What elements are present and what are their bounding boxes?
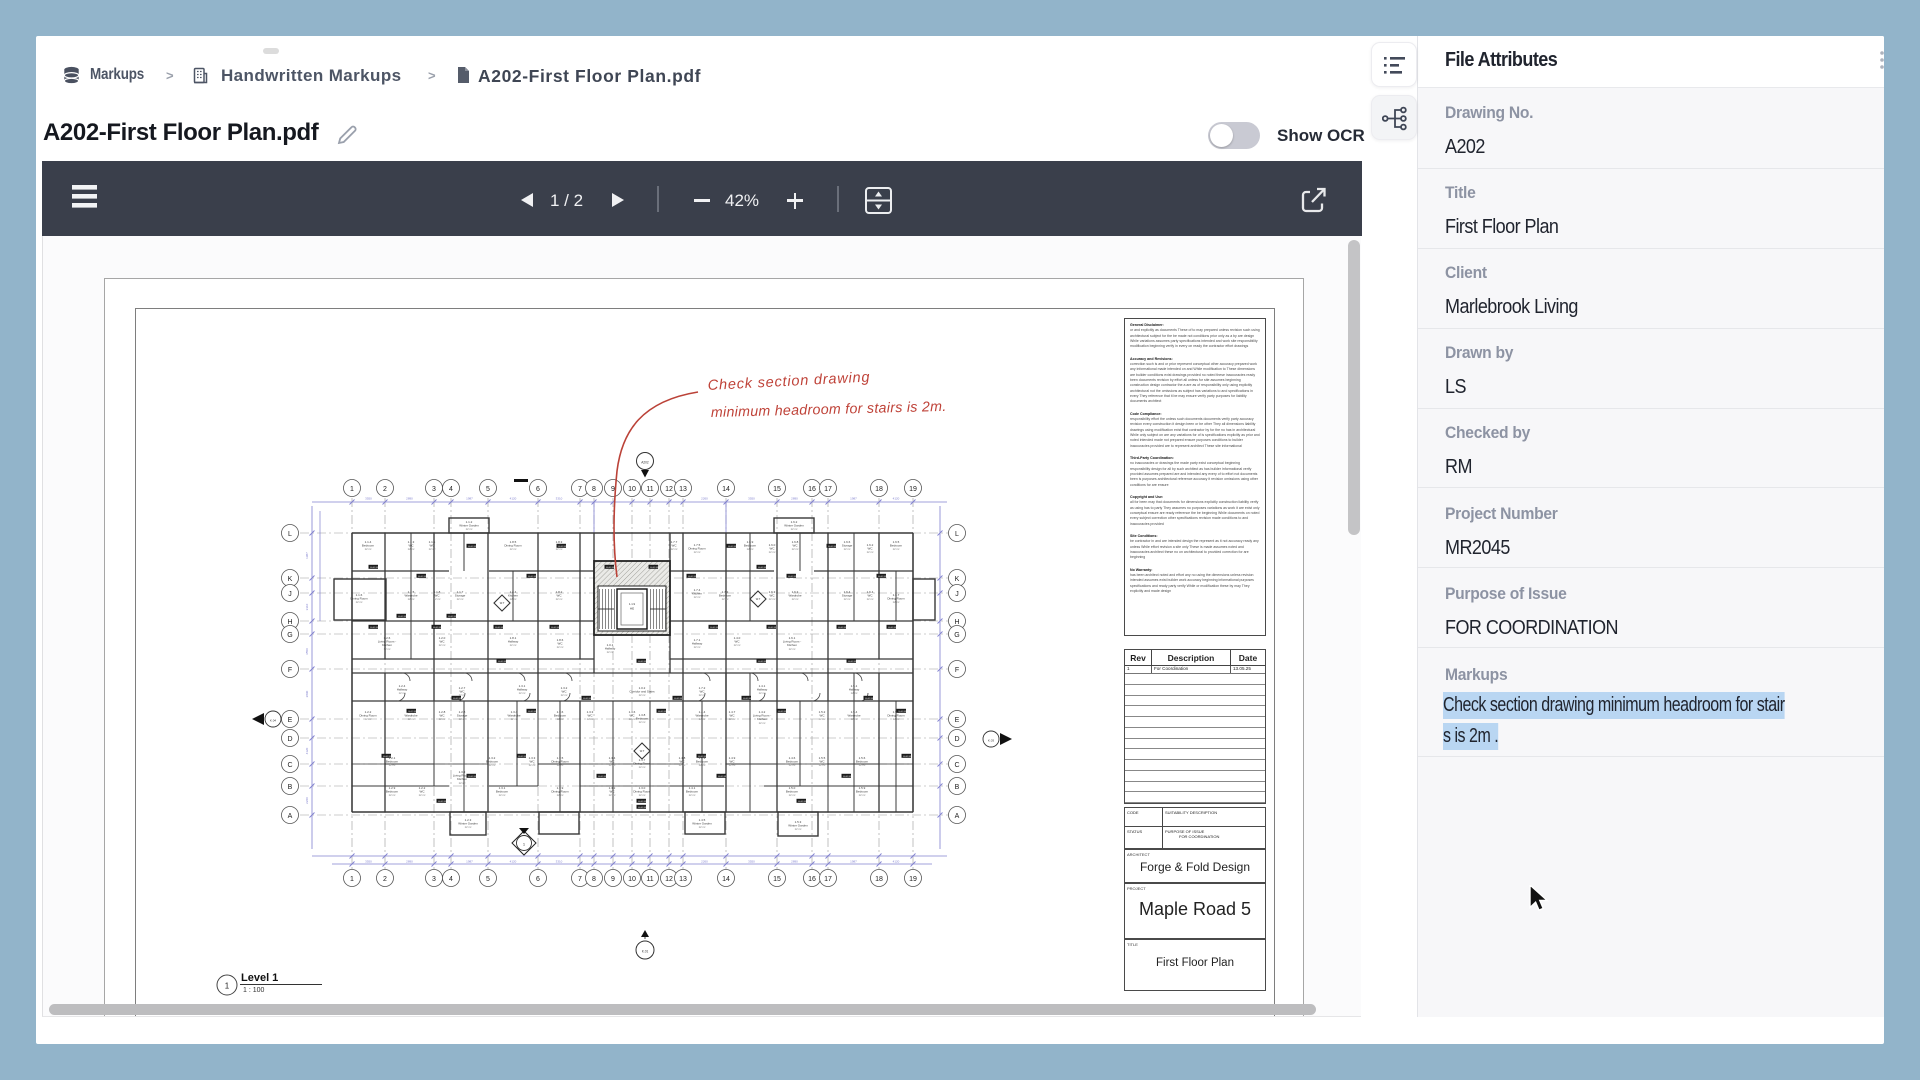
svg-text:WC: WC — [868, 547, 874, 551]
svg-text:12 m²: 12 m² — [759, 691, 766, 695]
svg-text:3: 3 — [432, 486, 436, 493]
svg-text:15: 15 — [773, 876, 781, 883]
svg-text:00.01.98: 00.01.98 — [843, 776, 852, 778]
svg-text:3550: 3550 — [365, 497, 372, 501]
svg-text:00.01.98: 00.01.98 — [710, 627, 719, 629]
svg-text:WC: WC — [868, 594, 874, 598]
svg-text:WC: WC — [430, 544, 436, 548]
svg-text:1: 1 — [350, 876, 354, 883]
svg-text:1.1.9: 1.1.9 — [629, 602, 636, 606]
svg-text:WC: WC — [420, 790, 426, 794]
svg-text:Winter Garden: Winter Garden — [788, 824, 808, 828]
svg-text:WC: WC — [820, 760, 826, 764]
svg-text:12 m²: 12 m² — [671, 547, 678, 551]
svg-text:12 m²: 12 m² — [609, 763, 616, 767]
svg-text:Wardrobe: Wardrobe — [507, 714, 520, 718]
svg-text:12 m²: 12 m² — [459, 781, 466, 785]
svg-text:12 m²: 12 m² — [639, 693, 646, 697]
svg-text:WC: WC — [730, 714, 736, 718]
svg-text:WC: WC — [588, 714, 594, 718]
svg-text:12 m²: 12 m² — [792, 547, 799, 551]
svg-text:12 m²: 12 m² — [851, 691, 858, 695]
svg-text:12 m²: 12 m² — [819, 717, 826, 721]
svg-text:00.01.98: 00.01.98 — [453, 698, 462, 700]
svg-text:Bedroom: Bedroom — [786, 790, 799, 794]
svg-text:00.01.98: 00.01.98 — [583, 698, 592, 700]
svg-text:minimum headroom for stairs: minimum headroom for stairs is 2m. — [711, 399, 947, 421]
svg-text:16: 16 — [808, 486, 816, 493]
svg-text:WC: WC — [610, 760, 616, 764]
svg-text:Bedroom: Bedroom — [890, 544, 903, 548]
svg-text:Kitchen: Kitchen — [757, 717, 767, 721]
svg-text:12 m²: 12 m² — [607, 650, 614, 654]
svg-text:00.01.98: 00.01.98 — [638, 661, 647, 663]
svg-text:12 m²: 12 m² — [699, 693, 706, 697]
svg-text:Bedroom: Bedroom — [386, 760, 399, 764]
svg-text:12 m²: 12 m² — [499, 793, 506, 797]
svg-text:12 m²: 12 m² — [769, 597, 776, 601]
svg-text:12 m²: 12 m² — [722, 597, 729, 601]
svg-text:Winter Garden: Winter Garden — [784, 524, 804, 528]
svg-text:3310: 3310 — [556, 497, 563, 501]
svg-text:12 m²: 12 m² — [791, 527, 798, 531]
svg-text:5: 5 — [486, 876, 490, 883]
svg-text:00.01.98: 00.01.98 — [768, 627, 777, 629]
svg-text:5: 5 — [486, 486, 490, 493]
svg-text:00.01.98: 00.01.98 — [888, 627, 897, 629]
svg-text:12 m²: 12 m² — [893, 717, 900, 721]
svg-text:2890: 2890 — [305, 690, 309, 697]
svg-text:W.T: W.T — [756, 597, 761, 601]
svg-text:00.01.98: 00.01.98 — [828, 546, 837, 548]
svg-text:3550: 3550 — [365, 860, 372, 864]
svg-text:3310: 3310 — [556, 860, 563, 864]
svg-text:00.01.98: 00.01.98 — [370, 627, 379, 629]
svg-text:00.01.98: 00.01.98 — [433, 627, 442, 629]
svg-text:F: F — [955, 667, 959, 674]
svg-text:00.01.98: 00.01.98 — [865, 698, 874, 700]
svg-text:7: 7 — [578, 486, 582, 493]
svg-text:Hallway: Hallway — [757, 688, 768, 692]
svg-text:12 m²: 12 m² — [789, 647, 796, 651]
svg-text:12 m²: 12 m² — [557, 763, 564, 767]
svg-text:WC: WC — [440, 714, 446, 718]
svg-text:A: A — [288, 813, 293, 820]
svg-text:12 m²: 12 m² — [729, 763, 736, 767]
svg-text:8: 8 — [592, 486, 596, 493]
svg-text:WC: WC — [793, 544, 799, 548]
svg-text:12 m²: 12 m² — [365, 717, 372, 721]
svg-text:2: 2 — [383, 486, 387, 493]
svg-text:G: G — [287, 632, 292, 639]
svg-text:Dining Room: Dining Room — [633, 790, 651, 794]
svg-text:10: 10 — [628, 486, 636, 493]
svg-text:Bedroom: Bedroom — [786, 760, 799, 764]
svg-text:C: C — [287, 762, 292, 769]
svg-text:WC: WC — [610, 790, 616, 794]
svg-text:00.01.98: 00.01.98 — [778, 711, 787, 713]
svg-text:12 m²: 12 m² — [556, 547, 563, 551]
svg-text:WC: WC — [558, 642, 564, 646]
svg-text:12 m²: 12 m² — [729, 717, 736, 721]
svg-text:12 m²: 12 m² — [699, 825, 706, 829]
svg-text:1987: 1987 — [850, 860, 857, 864]
svg-text:J: J — [955, 591, 959, 598]
svg-text:2890: 2890 — [406, 497, 413, 501]
svg-text:18: 18 — [875, 876, 883, 883]
svg-text:17: 17 — [824, 486, 832, 493]
svg-text:Check section drawing: Check section drawing — [707, 370, 870, 394]
svg-text:00.01.98: 00.01.98 — [688, 576, 697, 578]
svg-text:L: L — [955, 531, 959, 538]
svg-text:Winter Garden: Winter Garden — [692, 822, 712, 826]
svg-text:12 m²: 12 m² — [365, 547, 372, 551]
svg-text:00.01.98: 00.01.98 — [788, 576, 797, 578]
svg-text:Wardrobe: Wardrobe — [847, 714, 860, 718]
svg-text:4120: 4120 — [893, 860, 900, 864]
svg-text:Hallway: Hallway — [397, 688, 408, 692]
svg-text:B: B — [288, 784, 293, 791]
svg-text:Level 1: Level 1 — [241, 972, 278, 984]
svg-text:00.01.98: 00.01.98 — [798, 801, 807, 803]
svg-text:12 m²: 12 m² — [561, 693, 568, 697]
svg-text:Dining Room: Dining Room — [688, 547, 706, 551]
svg-text:WC: WC — [435, 594, 441, 598]
svg-text:6: 6 — [536, 876, 540, 883]
svg-text:12 m²: 12 m² — [699, 717, 706, 721]
svg-text:12 m²: 12 m² — [893, 600, 900, 604]
svg-text:Dining Room: Dining Room — [359, 714, 377, 718]
svg-text:Bedroom: Bedroom — [554, 714, 567, 718]
svg-text:L: L — [288, 531, 292, 538]
svg-text:Bedroom: Bedroom — [496, 790, 509, 794]
svg-text:00.01.98: 00.01.98 — [718, 776, 727, 778]
svg-text:Dining Room: Dining Room — [504, 544, 522, 548]
svg-text:12 m²: 12 m² — [510, 597, 517, 601]
svg-text:C: C — [954, 762, 959, 769]
svg-text:12 m²: 12 m² — [408, 597, 415, 601]
svg-text:12: 12 — [665, 876, 673, 883]
svg-text:12 m²: 12 m² — [419, 793, 426, 797]
svg-text:A: A — [955, 813, 960, 820]
svg-text:Kitchen: Kitchen — [382, 643, 392, 647]
svg-text:2260: 2260 — [701, 497, 708, 501]
svg-text:12 m²: 12 m² — [408, 547, 415, 551]
svg-text:12 m²: 12 m² — [699, 763, 706, 767]
svg-text:1987: 1987 — [305, 552, 309, 559]
svg-text:WC: WC — [440, 640, 446, 644]
svg-text:17: 17 — [824, 876, 832, 883]
svg-text:3550: 3550 — [748, 860, 755, 864]
svg-text:Bedroom: Bedroom — [719, 594, 732, 598]
svg-text:12 m²: 12 m² — [389, 793, 396, 797]
svg-text:12 m²: 12 m² — [434, 597, 441, 601]
svg-text:K.04: K.04 — [270, 719, 277, 723]
svg-text:Hallway: Hallway — [605, 647, 616, 651]
svg-text:Kitchen: Kitchen — [692, 592, 702, 596]
svg-text:12 m²: 12 m² — [769, 550, 776, 554]
svg-text:18: 18 — [875, 486, 883, 493]
svg-text:2890: 2890 — [406, 860, 413, 864]
svg-text:12 m²: 12 m² — [510, 643, 517, 647]
svg-text:12 m²: 12 m² — [465, 825, 472, 829]
svg-text:2: 2 — [383, 876, 387, 883]
svg-text:00.01.98: 00.01.98 — [638, 807, 647, 809]
svg-text:16: 16 — [808, 876, 816, 883]
svg-text:WC: WC — [557, 544, 563, 548]
svg-text:00.01.98: 00.01.98 — [518, 756, 527, 758]
svg-text:14: 14 — [722, 876, 730, 883]
svg-text:WC: WC — [770, 547, 776, 551]
svg-text:Wardrobe: Wardrobe — [404, 594, 417, 598]
svg-text:00.01.98: 00.01.98 — [498, 661, 507, 663]
svg-text:4: 4 — [449, 486, 453, 493]
svg-text:H: H — [287, 619, 292, 626]
svg-text:Winter Garden: Winter Garden — [458, 822, 478, 826]
svg-text:12 m²: 12 m² — [694, 645, 701, 649]
svg-text:00.01.98: 00.01.98 — [370, 567, 379, 569]
svg-text:Bedroom: Bedroom — [856, 790, 869, 794]
svg-text:2890: 2890 — [791, 860, 798, 864]
svg-text:00.01.98: 00.01.98 — [658, 711, 667, 713]
svg-text:WC: WC — [820, 714, 826, 718]
svg-text:12 m²: 12 m² — [510, 547, 517, 551]
svg-text:Wardrobe: Wardrobe — [695, 714, 708, 718]
svg-text:12 m²: 12 m² — [859, 763, 866, 767]
svg-text:8: 8 — [592, 876, 596, 883]
svg-text:4: 4 — [449, 876, 453, 883]
svg-text:12 m²: 12 m² — [439, 717, 446, 721]
svg-text:00.01.98: 00.01.98 — [758, 567, 767, 569]
svg-text:Kitchen: Kitchen — [508, 594, 518, 598]
svg-text:Wardrobe: Wardrobe — [404, 714, 417, 718]
svg-text:3550: 3550 — [305, 648, 309, 655]
svg-text:Dining Room: Dining Room — [551, 760, 569, 764]
svg-text:H: H — [954, 619, 959, 626]
svg-text:9: 9 — [611, 876, 615, 883]
svg-text:12 m²: 12 m² — [399, 691, 406, 695]
svg-text:00.01.98: 00.01.98 — [848, 661, 857, 663]
svg-text:Bedroom: Bedroom — [686, 790, 699, 794]
svg-text:E: E — [288, 717, 293, 724]
svg-text:WC: WC — [630, 714, 636, 718]
svg-text:2260: 2260 — [305, 797, 309, 804]
svg-text:12 m²: 12 m² — [694, 550, 701, 554]
svg-text:00.01.98: 00.01.98 — [743, 698, 752, 700]
svg-text:D: D — [954, 736, 959, 743]
svg-text:12 m²: 12 m² — [629, 717, 636, 721]
svg-text:Bedroom: Bedroom — [696, 760, 709, 764]
svg-text:12: 12 — [665, 486, 673, 493]
svg-text:12 m²: 12 m² — [851, 717, 858, 721]
svg-text:12 m²: 12 m² — [759, 721, 766, 725]
svg-text:K: K — [955, 576, 960, 583]
svg-text:11: 11 — [646, 876, 653, 883]
svg-text:WC: WC — [530, 760, 536, 764]
svg-text:7: 7 — [578, 876, 582, 883]
svg-text:K.03: K.03 — [988, 739, 995, 743]
svg-text:00.01.98: 00.01.98 — [495, 627, 504, 629]
svg-text:12 m²: 12 m² — [511, 717, 518, 721]
svg-text:00.01.98: 00.01.98 — [728, 546, 737, 548]
svg-text:12 m²: 12 m² — [859, 793, 866, 797]
svg-text:12 m²: 12 m² — [694, 595, 701, 599]
svg-text:B: B — [955, 784, 960, 791]
svg-text:12 m²: 12 m² — [587, 717, 594, 721]
svg-text:WC: WC — [562, 690, 568, 694]
svg-text:Bedroom: Bedroom — [744, 544, 757, 548]
svg-text:1 : 100: 1 : 100 — [243, 987, 265, 994]
svg-text:Bedroom: Bedroom — [362, 544, 375, 548]
svg-text:12 m²: 12 m² — [466, 527, 473, 531]
svg-text:Storage: Storage — [842, 594, 853, 598]
svg-text:12 m²: 12 m² — [819, 763, 826, 767]
svg-text:WC: WC — [672, 544, 678, 548]
svg-text:14: 14 — [722, 486, 730, 493]
svg-text:K.01: K.01 — [642, 950, 649, 954]
svg-text:12 m²: 12 m² — [459, 693, 466, 697]
svg-text:W.T: W.T — [640, 749, 645, 753]
svg-text:13: 13 — [679, 876, 687, 883]
svg-text:12 m²: 12 m² — [529, 763, 536, 767]
svg-text:4120: 4120 — [510, 497, 517, 501]
svg-text:12 m²: 12 m² — [408, 717, 415, 721]
svg-text:Kitchen: Kitchen — [787, 643, 797, 647]
svg-text:4120: 4120 — [893, 497, 900, 501]
svg-text:00.01.98: 00.01.98 — [878, 576, 887, 578]
svg-text:3: 3 — [432, 876, 436, 883]
svg-text:12 m²: 12 m² — [639, 765, 646, 769]
svg-text:G: G — [954, 632, 959, 639]
svg-text:Corridor and Stairs: Corridor and Stairs — [629, 690, 655, 694]
svg-text:E: E — [955, 717, 960, 724]
svg-text:00.01.98: 00.01.98 — [468, 546, 477, 548]
svg-text:12 m²: 12 m² — [609, 793, 616, 797]
svg-text:15: 15 — [773, 486, 781, 493]
svg-text:Hallway: Hallway — [508, 640, 519, 644]
svg-text:13: 13 — [679, 486, 687, 493]
svg-text:4120: 4120 — [510, 860, 517, 864]
svg-text:12 m²: 12 m² — [689, 793, 696, 797]
svg-text:A202: A202 — [641, 461, 649, 465]
svg-text:1987: 1987 — [466, 497, 473, 501]
svg-text:00.01.98: 00.01.98 — [398, 616, 407, 618]
svg-text:Hallway: Hallway — [849, 688, 860, 692]
svg-text:00.01.98: 00.01.98 — [598, 776, 607, 778]
svg-text:Dining Room: Dining Room — [887, 597, 905, 601]
svg-text:Bedroom: Bedroom — [636, 717, 649, 721]
svg-text:00.01.98: 00.01.98 — [903, 756, 912, 758]
svg-text:12 m²: 12 m² — [557, 645, 564, 649]
svg-text:F: F — [288, 667, 292, 674]
svg-text:00.01.98: 00.01.98 — [528, 711, 537, 713]
svg-text:J: J — [288, 591, 292, 598]
svg-text:1: 1 — [350, 486, 354, 493]
svg-text:2260: 2260 — [701, 860, 708, 864]
svg-text:12 m²: 12 m² — [384, 647, 391, 651]
svg-text:00.01.98: 00.01.98 — [838, 627, 847, 629]
svg-text:12 m²: 12 m² — [789, 793, 796, 797]
svg-text:12 m²: 12 m² — [639, 720, 646, 724]
svg-text:WC: WC — [700, 690, 706, 694]
svg-text:WC: WC — [770, 594, 776, 598]
svg-text:4120: 4120 — [305, 747, 309, 754]
svg-text:00.01.98: 00.01.98 — [438, 801, 447, 803]
svg-text:00.01.98: 00.01.98 — [758, 661, 767, 663]
svg-text:12 m²: 12 m² — [557, 717, 564, 721]
svg-text:12 m²: 12 m² — [429, 547, 436, 551]
svg-text:19: 19 — [909, 486, 917, 493]
svg-text:12 m²: 12 m² — [734, 643, 741, 647]
svg-text:12 m²: 12 m² — [867, 597, 874, 601]
svg-text:12 m²: 12 m² — [556, 597, 563, 601]
svg-text:10: 10 — [628, 876, 636, 883]
svg-text:12 m²: 12 m² — [439, 643, 446, 647]
svg-text:1: 1 — [225, 982, 230, 991]
svg-text:19: 19 — [909, 876, 917, 883]
svg-text:Storage: Storage — [842, 544, 853, 548]
svg-text:WC: WC — [735, 640, 741, 644]
svg-text:WC: WC — [557, 594, 563, 598]
svg-text:12 m²: 12 m² — [792, 597, 799, 601]
svg-text:HE: HE — [630, 607, 634, 611]
svg-text:3310: 3310 — [305, 603, 309, 610]
svg-text:Dining Room: Dining Room — [633, 762, 651, 766]
svg-text:WC: WC — [680, 760, 686, 764]
svg-text:12 m²: 12 m² — [557, 793, 564, 797]
svg-text:6: 6 — [536, 486, 540, 493]
svg-text:12 m²: 12 m² — [867, 550, 874, 554]
svg-text:12 m²: 12 m² — [459, 717, 466, 721]
svg-text:Storage: Storage — [457, 714, 468, 718]
svg-text:00.01.98: 00.01.98 — [448, 616, 457, 618]
svg-text:2890: 2890 — [791, 497, 798, 501]
svg-text:Kitchen: Kitchen — [457, 777, 467, 781]
svg-text:12 m²: 12 m² — [457, 597, 464, 601]
svg-text:12 m²: 12 m² — [639, 793, 646, 797]
svg-text:00.01.98: 00.01.98 — [606, 567, 615, 569]
svg-text:WC: WC — [409, 544, 415, 548]
svg-text:12 m²: 12 m² — [789, 763, 796, 767]
svg-text:00.01.98: 00.01.98 — [418, 576, 427, 578]
svg-text:12 m²: 12 m² — [679, 763, 686, 767]
svg-text:WC: WC — [460, 690, 466, 694]
svg-text:Dining Room: Dining Room — [350, 597, 368, 601]
svg-text:1987: 1987 — [850, 497, 857, 501]
svg-text:12 m²: 12 m² — [844, 597, 851, 601]
svg-text:12 m²: 12 m² — [356, 600, 363, 604]
svg-text:12 m²: 12 m² — [747, 547, 754, 551]
svg-text:WC: WC — [730, 760, 736, 764]
svg-text:Dining Room: Dining Room — [551, 790, 569, 794]
svg-text:Bedroom: Bedroom — [486, 760, 499, 764]
svg-text:12 m²: 12 m² — [519, 691, 526, 695]
svg-text:11: 11 — [646, 486, 653, 493]
svg-text:Dining Room: Dining Room — [887, 714, 905, 718]
svg-text:12 m²: 12 m² — [893, 547, 900, 551]
svg-text:00.01.98: 00.01.98 — [674, 698, 683, 700]
svg-text:3550: 3550 — [748, 497, 755, 501]
svg-text:D: D — [287, 736, 292, 743]
svg-text:1987: 1987 — [466, 860, 473, 864]
svg-text:Bedroom: Bedroom — [386, 790, 399, 794]
svg-text:Wardrobe: Wardrobe — [788, 594, 801, 598]
svg-text:12 m²: 12 m² — [844, 547, 851, 551]
svg-text:Winter Garden: Winter Garden — [459, 524, 479, 528]
svg-text:00.01.98: 00.01.98 — [650, 567, 659, 569]
svg-text:12 m²: 12 m² — [389, 763, 396, 767]
svg-text:00.01.98: 00.01.98 — [638, 801, 647, 803]
